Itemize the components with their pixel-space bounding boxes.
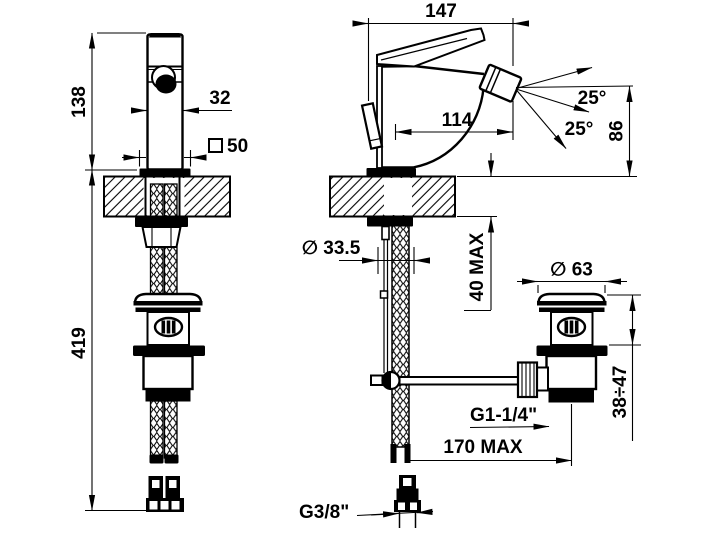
horizontal-rod	[400, 377, 532, 385]
dim-waste-cap-diameter: ∅ 63	[550, 260, 593, 281]
square-section-icon	[209, 139, 222, 152]
side-view: 25° 25° 147 114 86	[299, 1, 641, 528]
dim-waste-thread: G1-1/4"	[470, 405, 537, 426]
dim-angle-lower: 25°	[565, 119, 594, 140]
under-counter-side	[367, 217, 532, 463]
dim-supply-thread: G3/8"	[299, 502, 349, 523]
dim-hose-length: 419	[69, 327, 90, 359]
hose-connectors-front	[146, 476, 184, 512]
dim-hole-diameter: ∅ 33.5	[302, 238, 361, 259]
dim-base-square: 50	[227, 136, 248, 157]
side-view-dimensions: 147 114 86 40 MAX ∅ 33.5	[299, 1, 641, 523]
drawing-svg: 138 419 32 50	[0, 0, 714, 545]
dim-spout-reach: 114	[442, 110, 473, 131]
front-view: 138 419 32 50	[69, 33, 248, 512]
mounting-shank-front	[135, 217, 188, 247]
dim-body-width: 32	[209, 88, 230, 109]
dim-angle-upper: 25°	[578, 88, 607, 109]
faucet-side	[362, 29, 522, 177]
popup-waste-front	[133, 294, 205, 402]
mounting-nut-side	[367, 217, 413, 227]
countertop-side	[330, 177, 455, 217]
dim-horizontal-max: 170 MAX	[443, 437, 523, 458]
dim-depth-total: 147	[425, 1, 457, 22]
dim-deck-max: 40 MAX	[467, 232, 488, 301]
dim-outlet-height: 86	[607, 120, 628, 141]
technical-drawing-bidet-mixer: 138 419 32 50	[0, 0, 714, 545]
faucet-body-front	[140, 33, 191, 177]
handle-knob-front	[156, 75, 177, 94]
dim-spout-height: 138	[69, 86, 90, 118]
supply-hose-side	[392, 217, 409, 447]
popup-waste-side	[518, 294, 608, 466]
aerator	[479, 64, 521, 102]
dim-waste-height-range: 38÷47	[610, 366, 631, 419]
base-plate-side	[367, 168, 417, 177]
hose-connector-side	[394, 475, 421, 528]
base-plate-front	[140, 169, 191, 178]
